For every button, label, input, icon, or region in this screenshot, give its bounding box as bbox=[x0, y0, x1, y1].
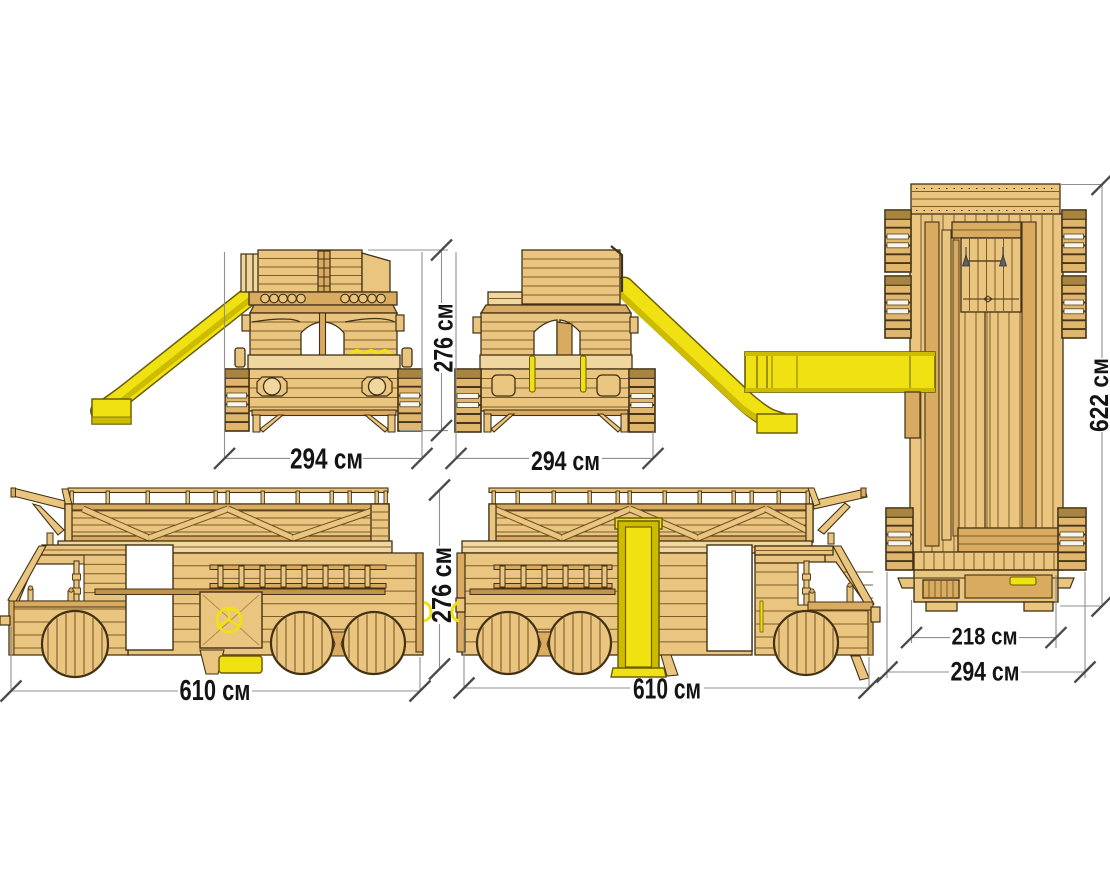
svg-text:294 см: 294 см bbox=[951, 657, 1020, 687]
svg-text:610 см: 610 см bbox=[180, 675, 251, 707]
svg-text:610 см: 610 см bbox=[633, 674, 701, 706]
svg-text:294 см: 294 см bbox=[290, 444, 363, 476]
svg-text:276 см: 276 см bbox=[429, 304, 459, 373]
svg-text:294 см: 294 см bbox=[531, 446, 600, 476]
svg-text:218 см: 218 см bbox=[952, 624, 1018, 651]
svg-text:622 см: 622 см bbox=[1084, 358, 1110, 432]
